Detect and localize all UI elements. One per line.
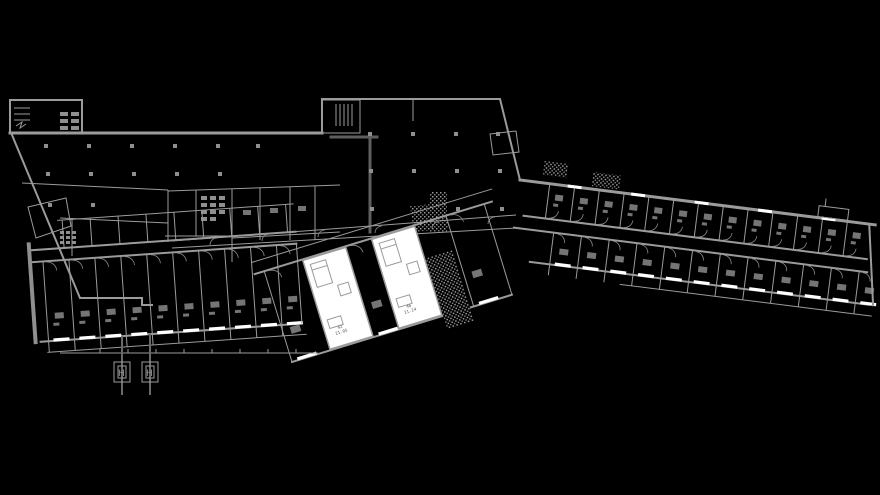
right-wing	[509, 158, 880, 316]
stair-symbol-topleft	[14, 108, 79, 130]
entrance-canopy	[543, 161, 569, 178]
highlighted-room-42[interactable]: 42 21.05	[303, 247, 373, 349]
bottom-left-wing	[25, 204, 306, 354]
stair-room-center	[322, 100, 360, 133]
hatch-grid-small	[60, 231, 76, 244]
floor-plan-drawing: 42 21.05 46 21.24	[0, 0, 880, 495]
stair-jog	[490, 131, 519, 155]
central-corridor	[172, 215, 516, 248]
section-letter: H	[146, 369, 153, 379]
stair-hatch	[336, 104, 352, 126]
top-center-hall	[322, 99, 520, 232]
wall	[22, 183, 168, 190]
section-letter: H	[118, 369, 125, 379]
section-markers: H H	[60, 334, 318, 395]
entrance-canopy	[592, 172, 622, 189]
cad-canvas[interactable]: 42 21.05 46 21.24	[0, 0, 880, 495]
column-grid-left-hall	[44, 144, 260, 207]
left-hall-block	[10, 100, 340, 305]
